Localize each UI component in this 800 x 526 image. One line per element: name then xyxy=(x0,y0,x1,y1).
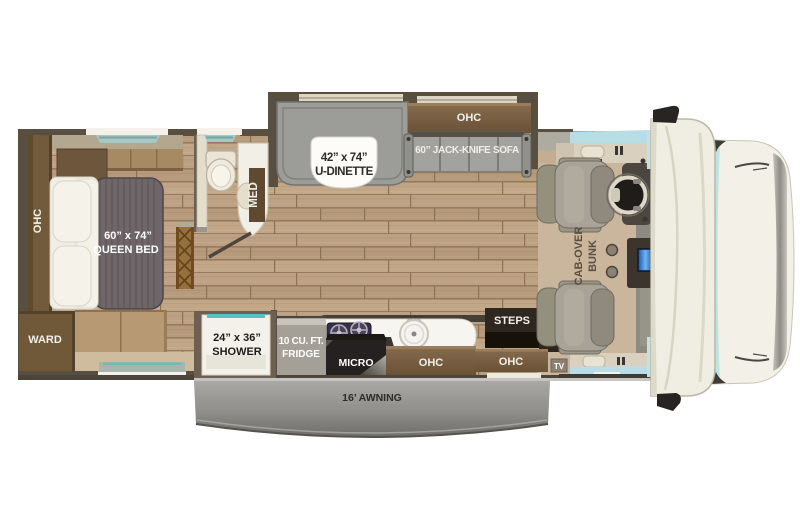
svg-text:BUNK: BUNK xyxy=(587,240,599,272)
svg-text:STEPS: STEPS xyxy=(494,315,530,327)
svg-text:OHC: OHC xyxy=(32,209,44,234)
svg-text:16’ AWNING: 16’ AWNING xyxy=(342,392,402,404)
svg-text:42” x 74”: 42” x 74” xyxy=(321,152,367,164)
svg-text:24” x 36”: 24” x 36” xyxy=(213,332,261,344)
svg-text:OHC: OHC xyxy=(457,112,482,124)
svg-text:U-DINETTE: U-DINETTE xyxy=(315,166,373,178)
svg-text:MED: MED xyxy=(248,182,260,208)
svg-text:60” x 74”: 60” x 74” xyxy=(104,230,152,242)
svg-text:TV: TV xyxy=(554,362,565,371)
svg-text:SHOWER: SHOWER xyxy=(212,346,262,358)
svg-text:CAB-OVER: CAB-OVER xyxy=(573,227,585,286)
svg-text:10 CU. FT.: 10 CU. FT. xyxy=(279,336,324,347)
svg-text:MICRO: MICRO xyxy=(339,357,374,369)
svg-text:OHC: OHC xyxy=(419,357,444,369)
svg-text:OHC: OHC xyxy=(499,356,524,368)
svg-text:FRIDGE: FRIDGE xyxy=(282,349,320,360)
svg-text:60” JACK-KNIFE SOFA: 60” JACK-KNIFE SOFA xyxy=(415,145,519,156)
svg-text:QUEEN BED: QUEEN BED xyxy=(93,244,158,256)
svg-text:WARD: WARD xyxy=(28,334,62,346)
